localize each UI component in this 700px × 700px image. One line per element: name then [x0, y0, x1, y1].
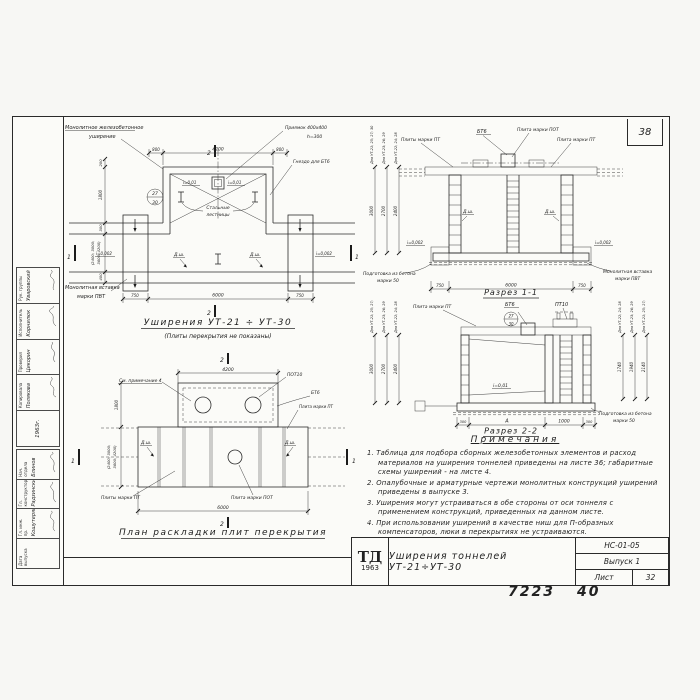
s1-title-group: Разрез 1-1: [483, 288, 539, 298]
section-1-1-drawing: БТ6 Плита марки ПОТ Плиты марки ПТ Плита…: [361, 123, 661, 301]
stamp-cell: Гл. конструктор Радзинский: [16, 479, 60, 509]
logo-year: 1963: [361, 564, 379, 572]
s2-prep-callout: Подготовка из бетона марки 50: [591, 408, 652, 424]
p2-dim-6000: 6000: [217, 505, 229, 511]
stamp-role: Гл. конструктор: [18, 482, 28, 507]
stamp-name: Цикорин: [26, 342, 32, 373]
p2-pot10-label: ПОТ10: [287, 372, 303, 378]
plan-socket-label: Гнездо для БТ6: [293, 159, 330, 165]
plan-slope-labels: i=0,01 i=0,01: [182, 180, 245, 186]
s1-slope-left: i=0,002: [407, 240, 423, 245]
plan-dim-800-left: 800: [152, 147, 160, 152]
title-block-logo: ТД 1963: [352, 538, 389, 585]
plan-slope-left: i=0,01: [183, 180, 196, 185]
scanned-drawing-page: { "common": { "dsh": "Д.ш.", "slope001":…: [0, 0, 700, 700]
plan-subtitle: (Плиты перекрытия не показаны): [164, 333, 271, 340]
p2-dsh-left: Д.ш.: [140, 440, 152, 446]
notes-block: Примечания 1. Таблица для подбора сборны…: [367, 435, 663, 539]
stamp-group-approvers: Дата выпуска Гл. инж. пр. Кошутерян Гл. …: [16, 449, 60, 569]
stamp-role: Нач. отдела: [18, 452, 28, 477]
p2-pts-label: Плиты марки ПТ: [101, 495, 141, 501]
s1-dim-750-left: 750: [436, 283, 444, 288]
s2-dim-300-right: 300: [586, 420, 593, 424]
plan-pit-label-1: Приямок 400х400: [285, 125, 327, 131]
s2-callouts-top: Плита марки ПТ БТ6 27 30 ПТ10: [413, 302, 568, 327]
s2-left-dimension-chains: 3000 2700 2400 Для УТ-21; 25; 27; 30 Для…: [369, 299, 401, 405]
p2-dsh-right: Д.ш.: [284, 440, 296, 446]
plan-mark-2-top: 2: [207, 150, 211, 157]
p2-bt6-label: БТ6: [311, 390, 320, 396]
stamp-cell: Нач. отдела Блинов: [16, 449, 60, 479]
drawing-sheet-frame: 38: [12, 116, 670, 586]
plan-left-dimension-chain: 200 1800 300 (2400; 3000; 3600; 4200) 40…: [90, 157, 107, 285]
s1-floor: [429, 247, 593, 265]
plan-dsh-left: Д.ш.: [173, 252, 185, 258]
plan-section-marks: 2 2 1 1: [67, 145, 359, 317]
s2-chamber: i=0,01: [469, 339, 545, 395]
footer-code-1: 7223: [508, 584, 555, 600]
logo-td: ТД: [358, 551, 383, 564]
stamp-role: Гл. инж. пр.: [18, 512, 28, 537]
signature-squiggle: [49, 376, 58, 398]
p2-note4-label: См. примечание 4: [119, 378, 162, 384]
title-block: ТД 1963 Уширения тоннелей УТ-21÷УТ-30 НС…: [351, 537, 669, 586]
s2-dim-1000: 1000: [558, 419, 570, 425]
stamp-role: Исполнитель: [18, 306, 23, 337]
plan-ladders-label-2: лестницы: [205, 213, 230, 218]
s1-prep-label-2: марки 50: [377, 278, 399, 284]
s1-pt-label: Плита марки ПТ: [557, 137, 596, 143]
p2-top-dimension: 4200: [176, 367, 280, 383]
stamp-name: Блинов: [31, 452, 37, 477]
stamp-cell: Исполнитель Корнилюк: [16, 303, 60, 339]
plan-dim-400: 400: [98, 273, 103, 281]
plan-dim-6000: 6000: [212, 293, 224, 299]
p2-dim-bracket-1: (2400; 3000;: [106, 444, 111, 469]
plan-dim-300: 300: [98, 224, 103, 232]
s2-slope-label: i=0,01: [493, 383, 508, 389]
s2-pt10-label: ПТ10: [555, 302, 568, 308]
s2-dim-1940: 1940: [629, 361, 634, 372]
plan-title-group: Уширения УТ-21 ÷ УТ-30 (Плиты перекрытия…: [141, 318, 295, 340]
p2-mark-1-left: 1: [71, 458, 75, 465]
stamp-name: Корнилюк: [26, 306, 32, 337]
s2-ut-right-2: Для УТ-23; 26; 29: [630, 301, 634, 334]
p2-dim-4200: 4200: [222, 367, 234, 373]
doc-code: НС-01-05: [576, 538, 668, 554]
s1-ladder: [507, 175, 519, 253]
p2-callouts: См. примечание 4 ПОТ10 БТ6 Плита марки П…: [118, 372, 334, 429]
plan-slope-right: i=0,01: [228, 180, 241, 185]
p2-callouts-bottom: Плиты марки ПТ Плита марки ПОТ: [101, 465, 274, 501]
stamp-name: Полякова: [26, 377, 32, 408]
sheet-label: Лист: [576, 570, 633, 585]
s1-dim-2400: 2400: [393, 205, 398, 216]
plan-dim-bracket-2: 3600; 4200): [96, 241, 101, 265]
stamp-cell: Проверил Цикорин: [16, 339, 60, 375]
plan-bottom-dimension: 750 6000 750: [121, 293, 315, 304]
s1-ut-label-2: Для УТ-23; 26; 29: [382, 132, 386, 165]
s2-ut-left-3: Для УТ-22; 24; 28: [394, 301, 398, 334]
stamp-name: Уваровский: [26, 270, 32, 301]
stamp-role: Рук. группы: [18, 270, 23, 301]
s2-ut-left-1: Для УТ-21; 25; 27; 30: [370, 299, 374, 334]
s1-slope-right: i=0,002: [595, 240, 611, 245]
stamp-role: Проверил: [18, 342, 23, 373]
s2-dim-300-left: 300: [460, 420, 467, 424]
s1-ut-label-1: Для УТ-21; 25; 27; 30: [370, 125, 374, 165]
s1-title: Разрез 1-1: [484, 288, 538, 297]
s1-dim-3000: 3000: [369, 205, 374, 216]
title-block-right: НС-01-05 Выпуск 1 Лист 32: [575, 538, 668, 585]
p2-joint-labels: Д.ш. Д.ш.: [140, 440, 296, 457]
plan-mark-1-left: 1: [67, 254, 71, 261]
s2-dim-1740: 1740: [617, 361, 622, 372]
s2-floor: [415, 401, 599, 415]
p2-left-dimension-chain: 1800 (2400; 3000; 3600; 4200): [106, 381, 123, 489]
s2-ut-right-3: Для УТ-21; 25; 27; 30: [642, 299, 646, 334]
s1-ut-label-3: Для УТ-22; 24; 28: [394, 132, 398, 165]
plan-callouts: Монолитное железобетонное уширение Приям…: [65, 125, 330, 300]
plan-monolithic-label-1: Монолитное железобетонное: [65, 125, 143, 131]
plan-ladders-label-1: Стальные: [206, 205, 230, 211]
stamp-role: Копировала: [18, 377, 23, 408]
s1-bt6-label: БТ6: [477, 129, 487, 135]
plan-insert-label-1: Монолитная вставка: [65, 285, 120, 291]
stamp-cell: Копировала Полякова: [16, 374, 60, 410]
plan-slope002-right: i=0,002: [316, 251, 332, 256]
signature-squiggle: [49, 451, 58, 473]
s2-pt-label: Плита марки ПТ: [413, 304, 452, 310]
s2-roof-slab: [461, 323, 591, 335]
plan-monolithic-label-2: уширение: [88, 134, 116, 140]
sheet-number: 32: [633, 570, 668, 585]
plan-title: Уширения УТ-21 ÷ УТ-30: [144, 318, 292, 328]
stamp-year-cell: 1963г.: [16, 410, 60, 447]
s2-dim-2140: 2140: [641, 361, 646, 372]
p2-mark-2-top: 2: [220, 357, 224, 364]
stamp-role: Дата выпуска: [18, 541, 28, 566]
s2-dim-2400: 2400: [393, 363, 398, 374]
p2-title-group: План раскладки плит перекрытия: [119, 528, 327, 539]
s2-ut-right-1: Для УТ-22; 24; 28: [618, 301, 622, 334]
s1-insert-label-2: марки ПВТ: [615, 276, 642, 282]
plan-monolithic-inserts: [123, 215, 313, 291]
plan-dim-800-right: 800: [276, 147, 284, 152]
s1-callouts-bottom: Подготовка из бетона марки 50 Монолитная…: [363, 263, 652, 284]
signature-squiggle: [49, 511, 58, 533]
p2-mark-2-bottom: 2: [220, 521, 224, 528]
stamp-cell: Дата выпуска: [16, 538, 60, 569]
signature-squiggle: [49, 305, 58, 327]
s1-left-dimension-chains: 3000 2700 2400 Для УТ-21; 25; 27; 30 Для…: [369, 125, 401, 255]
s2-dim-2700: 2700: [381, 363, 386, 374]
stamp-name: Радзинский: [31, 482, 37, 507]
s1-dsh-left: Д.ш.: [462, 209, 474, 215]
plan-pit-label-2: h=300: [307, 134, 322, 140]
s1-prep-label-1: Подготовка из бетона: [363, 271, 416, 277]
stamp-group-executors: 1963г. Копировала Полякова Проверил Цико…: [16, 267, 60, 447]
stamp-strip: 1963г. Копировала Полякова Проверил Цико…: [13, 117, 63, 585]
plan-dsh-right: Д.ш.: [249, 252, 261, 258]
signature-squiggle: [49, 481, 58, 503]
p2-title: План раскладки плит перекрытия: [119, 528, 327, 538]
p2-widening-cover: [178, 383, 278, 427]
s1-roof-slabs: [425, 154, 597, 175]
footer-codes: 722340: [508, 584, 622, 600]
drawing-title: Уширения тоннелей УТ-21÷УТ-30: [389, 538, 575, 585]
plan-detail-mark: 27 30: [147, 189, 163, 206]
plan-insert-label-2: марки ПВТ: [77, 294, 106, 300]
s1-pot-label: Плита марки ПОТ: [517, 127, 560, 133]
s2-prep-label-2: марки 50: [613, 418, 635, 424]
p2-dim-bracket-2: 3600; 4200): [112, 445, 117, 469]
p2-pot-label: Плита марки ПОТ: [231, 495, 274, 501]
s2-detail-bottom: 30: [508, 322, 514, 327]
bottom-divider-line: [63, 557, 351, 558]
slab-layout-plan-drawing: 2 2 1 1 4200 См. примечание 4 ПОТ10 БТ6 …: [63, 349, 363, 541]
plan-dim-750-right: 750: [296, 293, 304, 298]
s1-pts-label: Плиты марки ПТ: [401, 137, 441, 143]
note-item-1: 1. Таблица для подбора сборных железобет…: [367, 449, 663, 478]
s2-right-dimension-chains: 1740 1940 2140 Для УТ-22; 24; 28 Для УТ-…: [617, 299, 649, 401]
p2-bottom-dimension: 6000: [136, 491, 310, 515]
stamp-cell: Рук. группы Уваровский: [16, 267, 60, 303]
plan-dim-750-left: 750: [131, 293, 139, 298]
plan-dim-4200: 4200: [212, 147, 224, 153]
note-item-4: 4. При использовании уширений в качестве…: [367, 519, 663, 538]
signature-squiggle: [49, 269, 58, 291]
plan-detail-top: 27: [152, 191, 158, 197]
p2-pt-label: Плита марки ПТ: [299, 404, 334, 409]
footer-code-2: 40: [577, 584, 600, 600]
s1-dsh-right: Д.ш.: [544, 209, 556, 215]
doc-sheet-row: Лист 32: [576, 570, 668, 585]
plan-dim-bracket-1: (2400; 3000;: [90, 240, 95, 265]
s1-insert-label-1: Монолитная вставка: [603, 269, 652, 275]
s2-walls: [461, 335, 591, 403]
s2-bt6-label: БТ6: [505, 302, 515, 308]
note-item-3: 3. Уширения могут устраиваться в обе сто…: [367, 499, 663, 518]
doc-issue: Выпуск 1: [576, 554, 668, 570]
plan-dim-200: 200: [98, 159, 103, 167]
section-2-2-drawing: Плита марки ПТ БТ6 27 30 ПТ10: [361, 299, 661, 439]
p2-section-marks: 2 2 1 1: [71, 353, 356, 528]
s2-prep-label-1: Подготовка из бетона: [599, 411, 652, 417]
plan-mark-2-bottom: 2: [207, 310, 211, 317]
p2-mark-1-right: 1: [352, 458, 356, 465]
plan-detail-bottom: 30: [152, 200, 158, 206]
s2-ut-left-2: Для УТ-23; 26; 29: [382, 301, 386, 334]
s2-ladder: [560, 335, 572, 403]
note-item-2: 2. Опалубочные и арматурные чертежи моно…: [367, 479, 663, 498]
stamp-cell: Гл. инж. пр. Кошутерян: [16, 509, 60, 539]
s1-dim-750-right: 750: [578, 283, 586, 288]
s2-dim-3000: 3000: [369, 363, 374, 374]
stamp-year: 1963г.: [35, 419, 41, 438]
p2-tunnel-cover: [101, 427, 345, 487]
plan-mark-1-right: 1: [355, 254, 359, 261]
s2-dim-A: А: [504, 419, 509, 425]
s1-callouts-top: БТ6 Плита марки ПОТ Плиты марки ПТ Плита…: [401, 127, 596, 167]
notes-title: Примечания: [367, 435, 663, 445]
plan-dim-1800: 1800: [98, 189, 103, 200]
signature-squiggle: [49, 341, 58, 363]
plan-view-drawing: Стальные лестницы i=0,01 i=0,01 Д.ш. Д.ш…: [63, 119, 361, 341]
s1-dim-2700: 2700: [381, 205, 386, 216]
s2-shaft-cap: [553, 312, 577, 327]
p2-dim-1800: 1800: [114, 399, 119, 410]
stamp-name: Кошутерян: [31, 512, 37, 537]
s2-detail-top: 27: [508, 314, 514, 319]
